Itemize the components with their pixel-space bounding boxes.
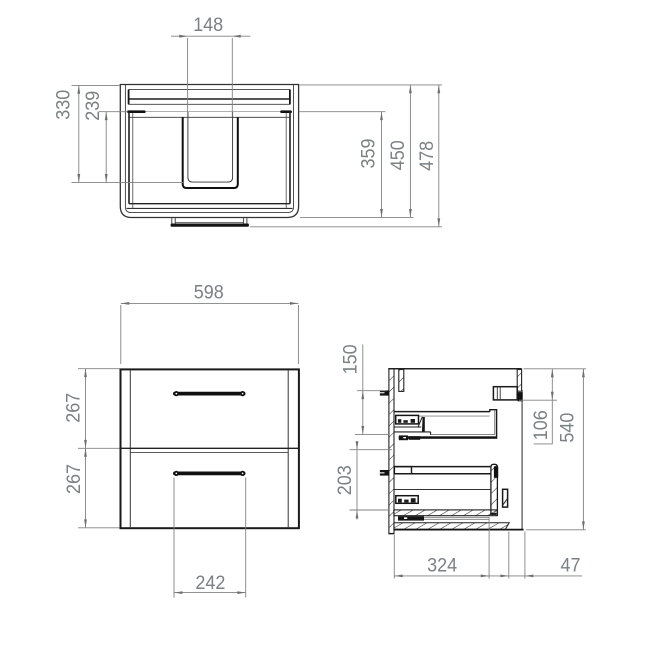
- svg-text:450: 450: [387, 140, 409, 170]
- svg-text:324: 324: [427, 554, 457, 576]
- svg-text:598: 598: [194, 281, 224, 303]
- svg-text:203: 203: [334, 465, 356, 495]
- svg-text:540: 540: [557, 412, 579, 442]
- svg-text:106: 106: [530, 410, 552, 440]
- svg-text:47: 47: [561, 554, 581, 576]
- svg-text:330: 330: [52, 90, 74, 120]
- svg-text:239: 239: [82, 91, 104, 121]
- svg-text:267: 267: [63, 393, 85, 423]
- svg-text:267: 267: [63, 464, 85, 494]
- svg-text:242: 242: [195, 572, 225, 594]
- svg-text:478: 478: [416, 141, 438, 171]
- svg-text:148: 148: [193, 14, 223, 36]
- svg-text:359: 359: [358, 139, 380, 169]
- svg-text:150: 150: [339, 344, 361, 374]
